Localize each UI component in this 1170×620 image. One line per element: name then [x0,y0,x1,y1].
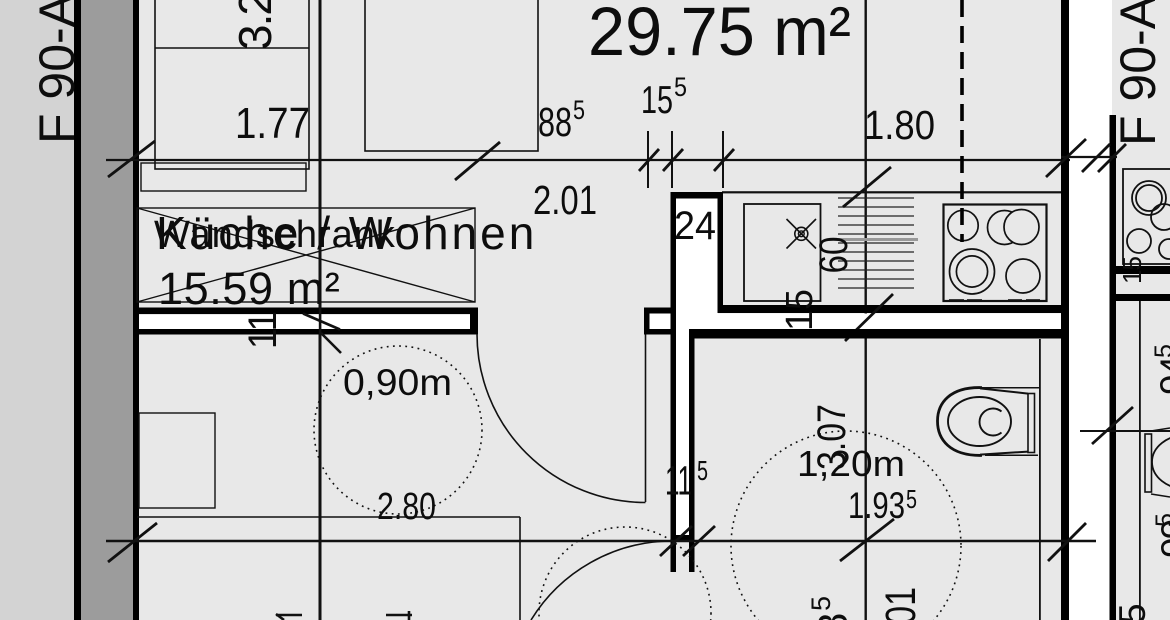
svg-text:1.80: 1.80 [864,102,935,148]
svg-text:3.07: 3.07 [810,404,854,470]
svg-text:88: 88 [538,99,572,145]
svg-text:F 90-A: F 90-A [29,0,85,144]
svg-text:5: 5 [697,455,708,486]
svg-text:3.2: 3.2 [229,0,281,50]
svg-text:15.59 m²: 15.59 m² [158,263,340,314]
svg-text:24: 24 [674,204,716,248]
svg-text:15: 15 [779,289,821,331]
svg-text:5: 5 [1112,603,1153,620]
svg-text:11: 11 [665,458,692,504]
svg-text:2.01: 2.01 [877,587,925,620]
svg-text:0,90m: 0,90m [343,362,452,403]
svg-text:5: 5 [806,596,836,611]
svg-text:29.75 m²: 29.75 m² [588,0,851,70]
svg-text:8: 8 [809,613,856,620]
svg-text:1.77: 1.77 [235,99,310,148]
svg-text:11: 11 [241,311,285,349]
svg-text:15: 15 [641,79,673,122]
svg-text:5: 5 [1150,344,1170,358]
svg-text:60: 60 [812,237,856,274]
svg-text:5: 5 [906,484,917,514]
svg-text:15: 15 [1117,257,1147,284]
svg-text:5: 5 [674,72,687,102]
svg-text:1.93: 1.93 [848,485,905,526]
svg-text:2.01: 2.01 [533,177,597,223]
svg-text:5: 5 [1151,513,1170,527]
svg-text:94: 94 [1153,356,1170,395]
svg-text:F 90-A: F 90-A [1110,0,1166,146]
svg-text:Küche / Wohnen: Küche / Wohnen [156,207,537,259]
svg-text:5: 5 [573,95,585,125]
svg-text:2.80: 2.80 [377,486,436,528]
